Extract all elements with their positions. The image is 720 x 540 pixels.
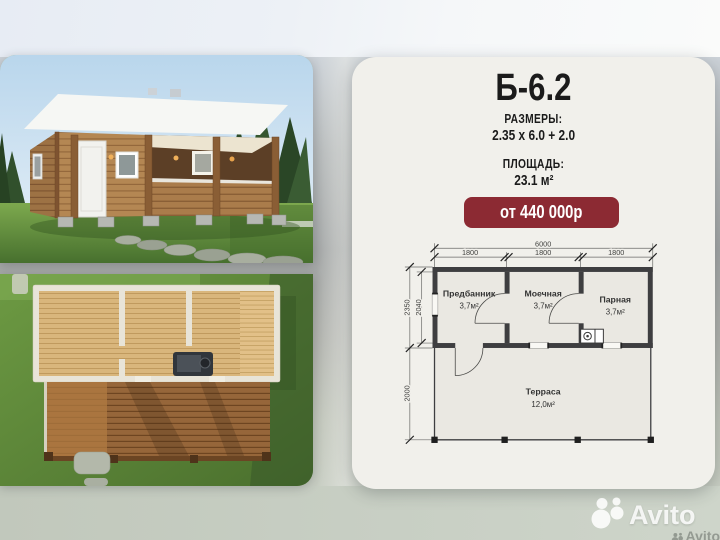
model-title: Б-6.2 (352, 67, 715, 110)
building-topdown (33, 285, 280, 463)
avito-watermark: Avito Avito (590, 495, 716, 537)
stove-body (177, 355, 201, 372)
house (24, 88, 288, 227)
roof-vent (170, 89, 181, 97)
svg-text:Моечная: Моечная (524, 289, 561, 299)
photo-exterior-render (0, 55, 313, 263)
stone-slab (84, 478, 108, 486)
svg-text:2350: 2350 (402, 299, 411, 315)
sizes-value: 2.35 x 6.0 + 2.0 (352, 128, 715, 144)
bench-steps (240, 291, 274, 376)
area-label: ПЛОЩАДЬ: (352, 157, 715, 171)
room-floors (39, 291, 274, 376)
avito-echo-text: Avito (686, 528, 720, 540)
svg-text:2000: 2000 (402, 385, 411, 401)
wall-lamp (109, 155, 114, 160)
photo-topdown-render (0, 274, 313, 486)
stove-tank (200, 358, 210, 368)
avito-wordmark: Avito (629, 502, 696, 529)
roof-vent (148, 88, 157, 95)
svg-text:3,7м²: 3,7м² (460, 301, 479, 310)
avito-wordmark-echo: Avito (671, 528, 720, 540)
svg-text:1800: 1800 (535, 248, 551, 257)
sizes-label: РАЗМЕРЫ: (352, 112, 715, 126)
svg-text:Терраса: Терраса (526, 386, 561, 396)
svg-text:12,0м²: 12,0м² (531, 400, 555, 409)
terrace-window-glass (195, 154, 211, 172)
svg-text:Предбанник: Предбанник (443, 289, 496, 299)
svg-text:3,7м²: 3,7м² (534, 301, 553, 310)
listing-image: Б-6.2 РАЗМЕРЫ: 2.35 x 6.0 + 2.0 ПЛОЩАДЬ:… (0, 0, 720, 540)
svg-text:2040: 2040 (414, 299, 423, 315)
top-band (0, 0, 720, 57)
avito-logo-icon-small (671, 532, 684, 540)
path-slab (12, 274, 28, 294)
terrace-light (47, 382, 107, 458)
stove-icon (581, 329, 604, 343)
price-badge: от 440 000р (464, 197, 619, 228)
svg-text:3,7м²: 3,7м² (606, 307, 625, 316)
svg-text:Парная: Парная (599, 295, 631, 305)
svg-text:1800: 1800 (608, 248, 624, 257)
window-mark (209, 376, 225, 382)
topdown-scene (0, 274, 313, 486)
stone-slab (74, 452, 110, 474)
svg-text:6000: 6000 (535, 239, 551, 248)
info-card: Б-6.2 РАЗМЕРЫ: 2.35 x 6.0 + 2.0 ПЛОЩАДЬ:… (352, 57, 715, 489)
area-value: 23.1 м² (352, 173, 715, 189)
wall-lamp (230, 157, 235, 162)
svg-text:1800: 1800 (462, 248, 478, 257)
terrace-door-opening (455, 343, 483, 348)
exterior-scene (0, 55, 313, 263)
avito-logo-icon (590, 495, 626, 529)
front-window-glass (119, 155, 135, 175)
side-window-glass (35, 157, 41, 177)
window-mark (135, 376, 151, 382)
floor-plan: 6000 1800 1800 1800 2350 2040 2000 (396, 238, 712, 454)
wall-lamp (174, 156, 179, 161)
